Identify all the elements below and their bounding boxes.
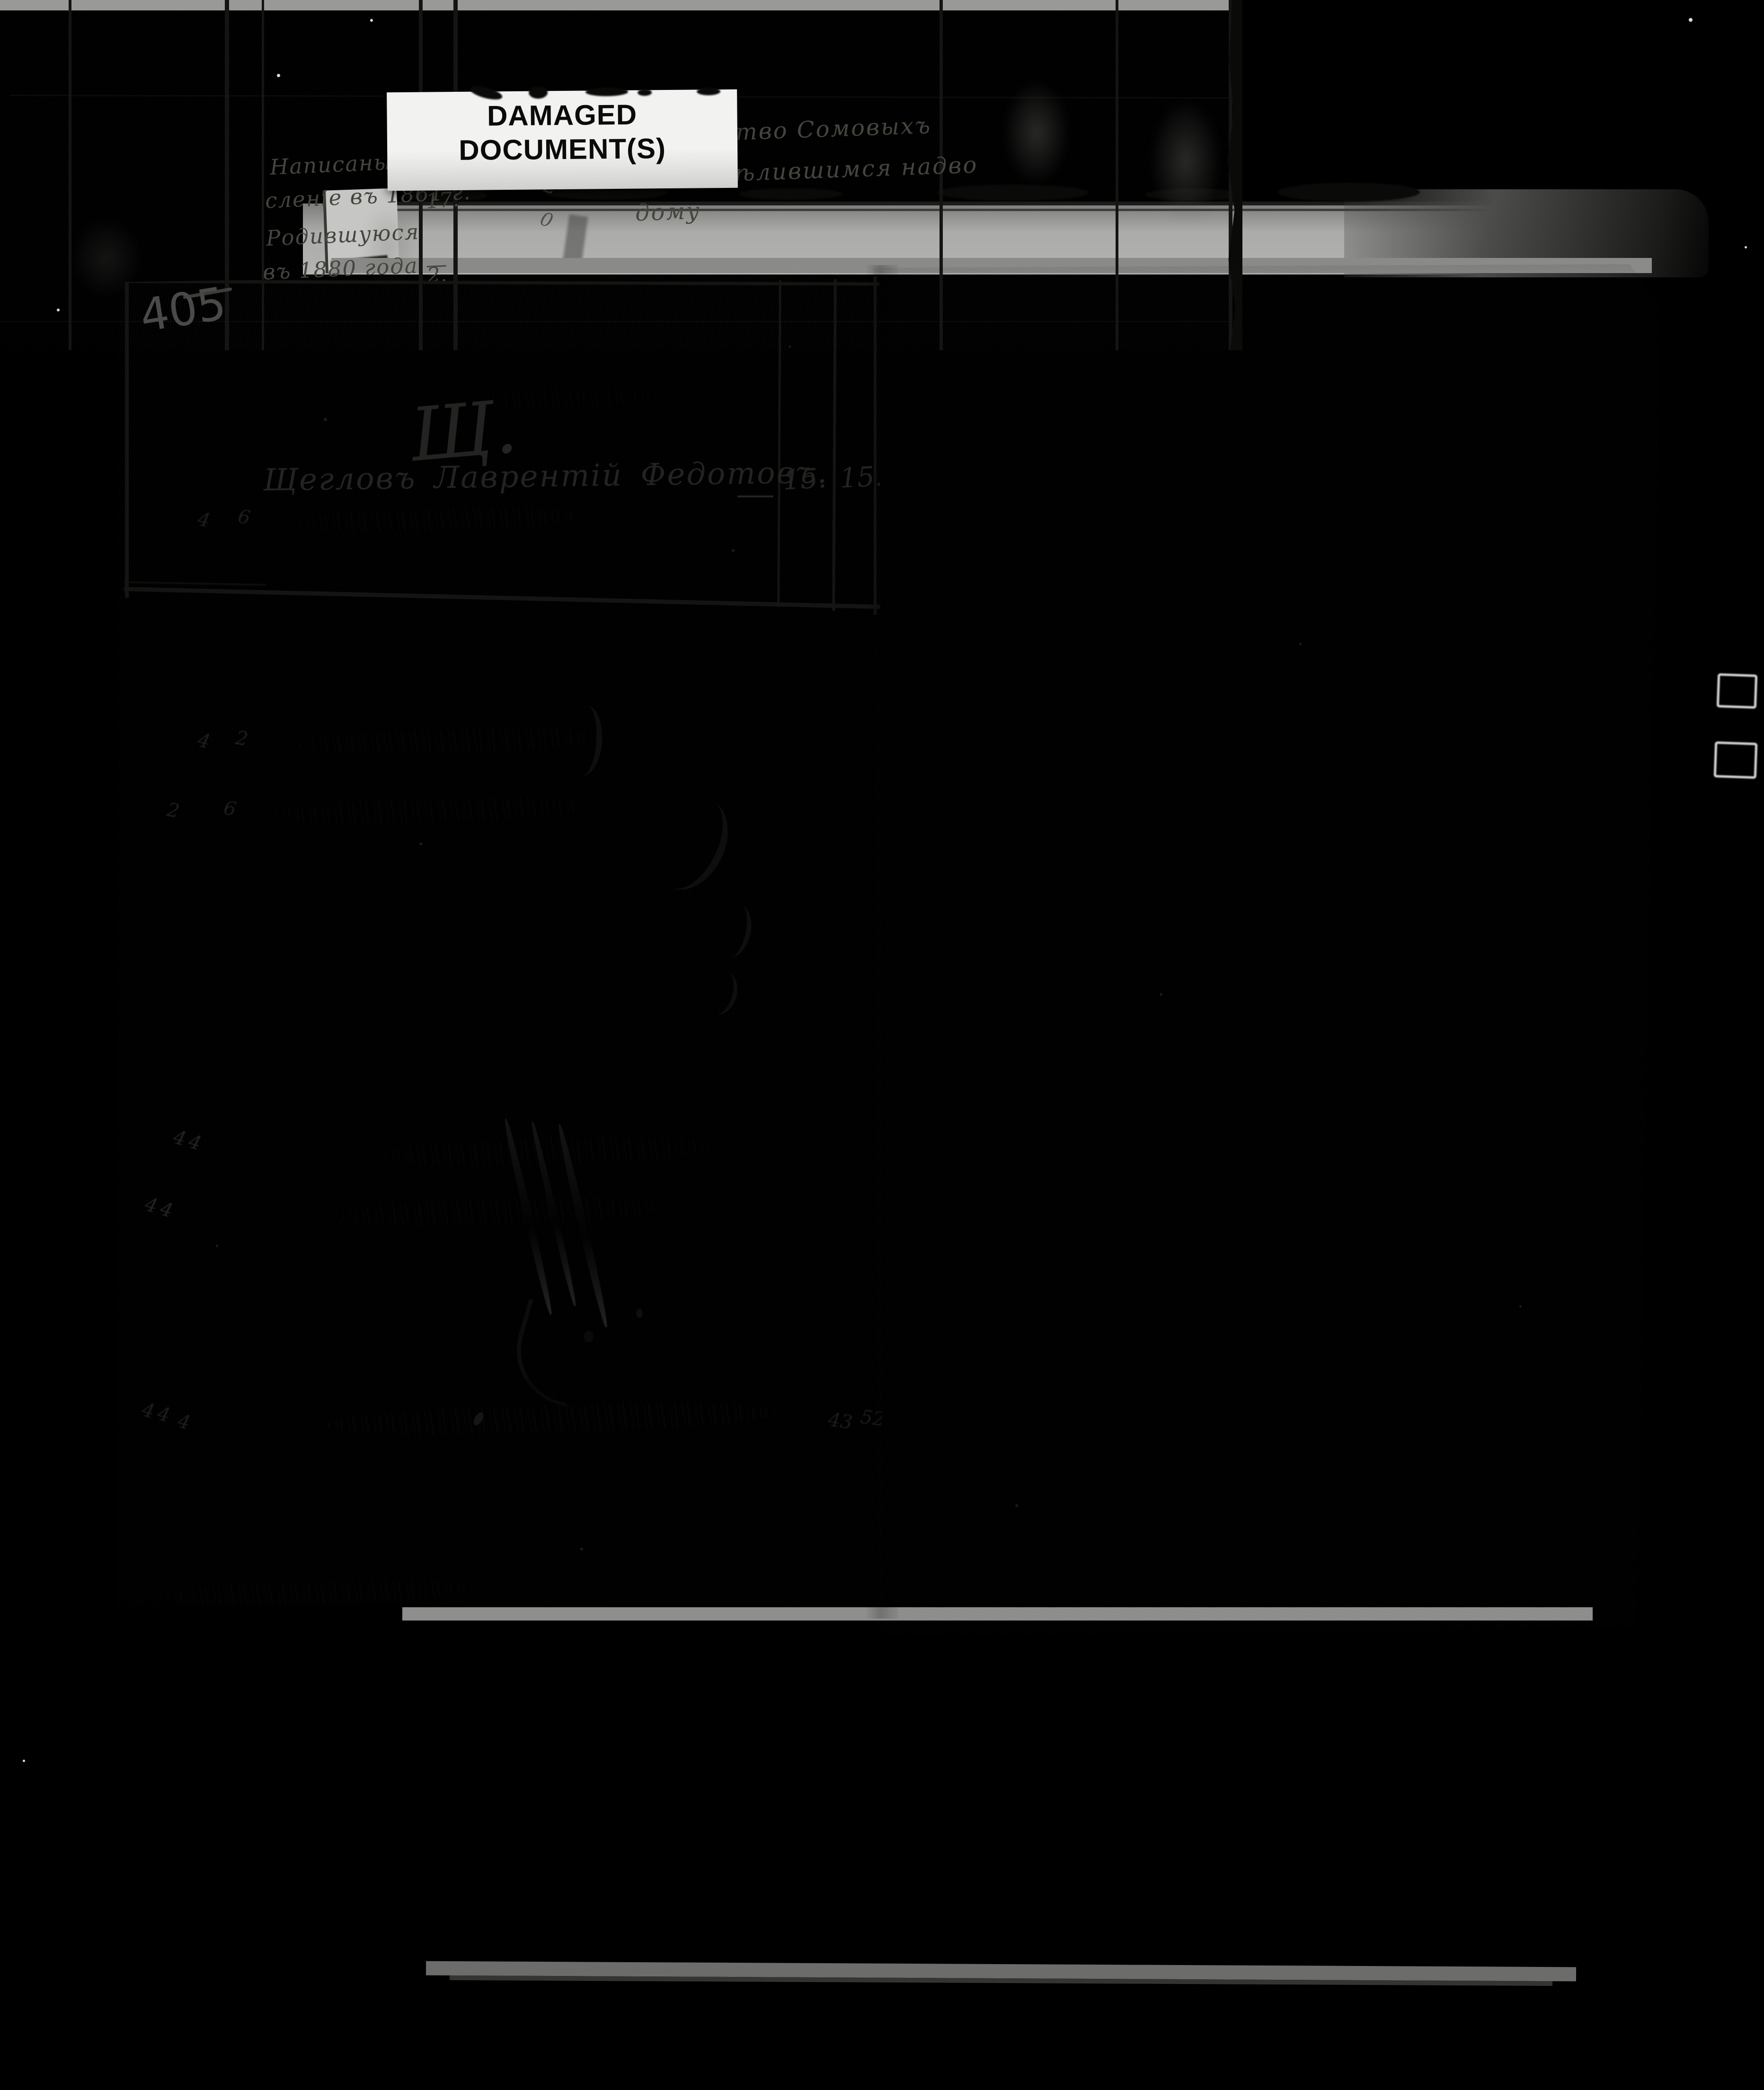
ghost-digit: 44 (140, 1399, 176, 1428)
ghost-text-band (296, 726, 599, 757)
right-page (873, 264, 1661, 1637)
ghost-digit: 6 (222, 797, 238, 821)
archival-scan: Написаны зачи- сленіе въ 1861 г. 17. Род… (0, 0, 1764, 2090)
paper-fleck (1160, 993, 1162, 996)
bottom-page-top-shadow (0, 0, 1242, 10)
ghost-text-band (324, 1399, 779, 1439)
table-left-border (125, 280, 129, 598)
entry-dash: — (736, 477, 775, 512)
dust-speck (370, 19, 373, 22)
ghost-digit: 2 (165, 799, 181, 823)
paper-fleck (324, 418, 327, 421)
dust-speck (1689, 18, 1693, 22)
damaged-document-label: DAMAGED DOCUMENT(S) (387, 89, 738, 191)
left-page: 405 Щ. Щегловъ Лаврентій Федотовъ. — 15.… (116, 270, 882, 1609)
ink-crescent (700, 968, 743, 1018)
ghost-text-band (296, 505, 580, 535)
water-stain (1003, 80, 1070, 185)
ghost-digit: 44 (142, 1194, 179, 1223)
paper-fleck (216, 1245, 218, 1247)
page-number: 405 (137, 277, 230, 342)
ghost-digit: 4 (195, 729, 213, 753)
ghost-text-band (163, 1576, 476, 1608)
dust-speck (1745, 246, 1747, 248)
ink-dot (584, 1331, 594, 1342)
column-rule (69, 0, 71, 350)
ghost-digit: 6 (236, 505, 252, 529)
entry-col1-value: 15. (782, 462, 827, 496)
ink-arc (504, 1299, 593, 1407)
ghost-digit: 2 (234, 727, 249, 751)
paper-fleck (789, 345, 791, 348)
paper-fleck (732, 549, 735, 552)
ghost-digit: 4 (195, 508, 212, 532)
label-ink-smudge (529, 86, 548, 98)
ink-crescent (715, 903, 755, 960)
ghost-digit: 44 (171, 1126, 207, 1156)
ghost-text-band (272, 795, 585, 826)
dust-speck (23, 1760, 25, 1762)
page-top-shading (873, 264, 1661, 286)
paper-fleck (1015, 1504, 1018, 1507)
note-right-line3: дому (635, 198, 701, 227)
label-ink-smudge (697, 88, 720, 95)
paper-fleck (580, 1548, 583, 1550)
table-bottom-border (124, 587, 883, 609)
sprocket-mark (1714, 741, 1758, 779)
fold-line (192, 270, 194, 1609)
fold-line (261, 270, 262, 1609)
ghost-text-band (338, 1195, 661, 1229)
note-left-num1: 17. (425, 187, 460, 214)
gutter-shadow (865, 265, 898, 1619)
ink-dot (636, 1309, 643, 1318)
burn-mark (1278, 183, 1420, 202)
paper-fleck (1299, 643, 1302, 645)
burn-mark (738, 188, 842, 200)
label-ink-smudge (638, 89, 652, 96)
water-stain (1150, 99, 1221, 222)
paper-fleck (419, 842, 422, 845)
dust-speck (277, 74, 280, 77)
ghost-text-band (381, 1134, 713, 1169)
ink-crescent (638, 785, 742, 903)
ghost-digit: 43 (827, 1409, 854, 1434)
sprocket-mark (1717, 673, 1757, 709)
damaged-label-line1: DAMAGED (487, 98, 638, 133)
label-ink-smudge (585, 88, 628, 97)
ghost-digit: 4 (176, 1410, 193, 1435)
dust-speck (57, 309, 60, 311)
table-bottom-border-echo (124, 581, 266, 586)
table-column-divider-2 (832, 279, 837, 611)
ink-crescent (564, 704, 604, 778)
table-top-border (125, 280, 882, 286)
burn-mark (937, 185, 1089, 201)
damaged-label-line2: DOCUMENT(S) (459, 132, 666, 168)
table-column-divider-1 (777, 280, 781, 607)
paper-fleck (1519, 1305, 1522, 1308)
